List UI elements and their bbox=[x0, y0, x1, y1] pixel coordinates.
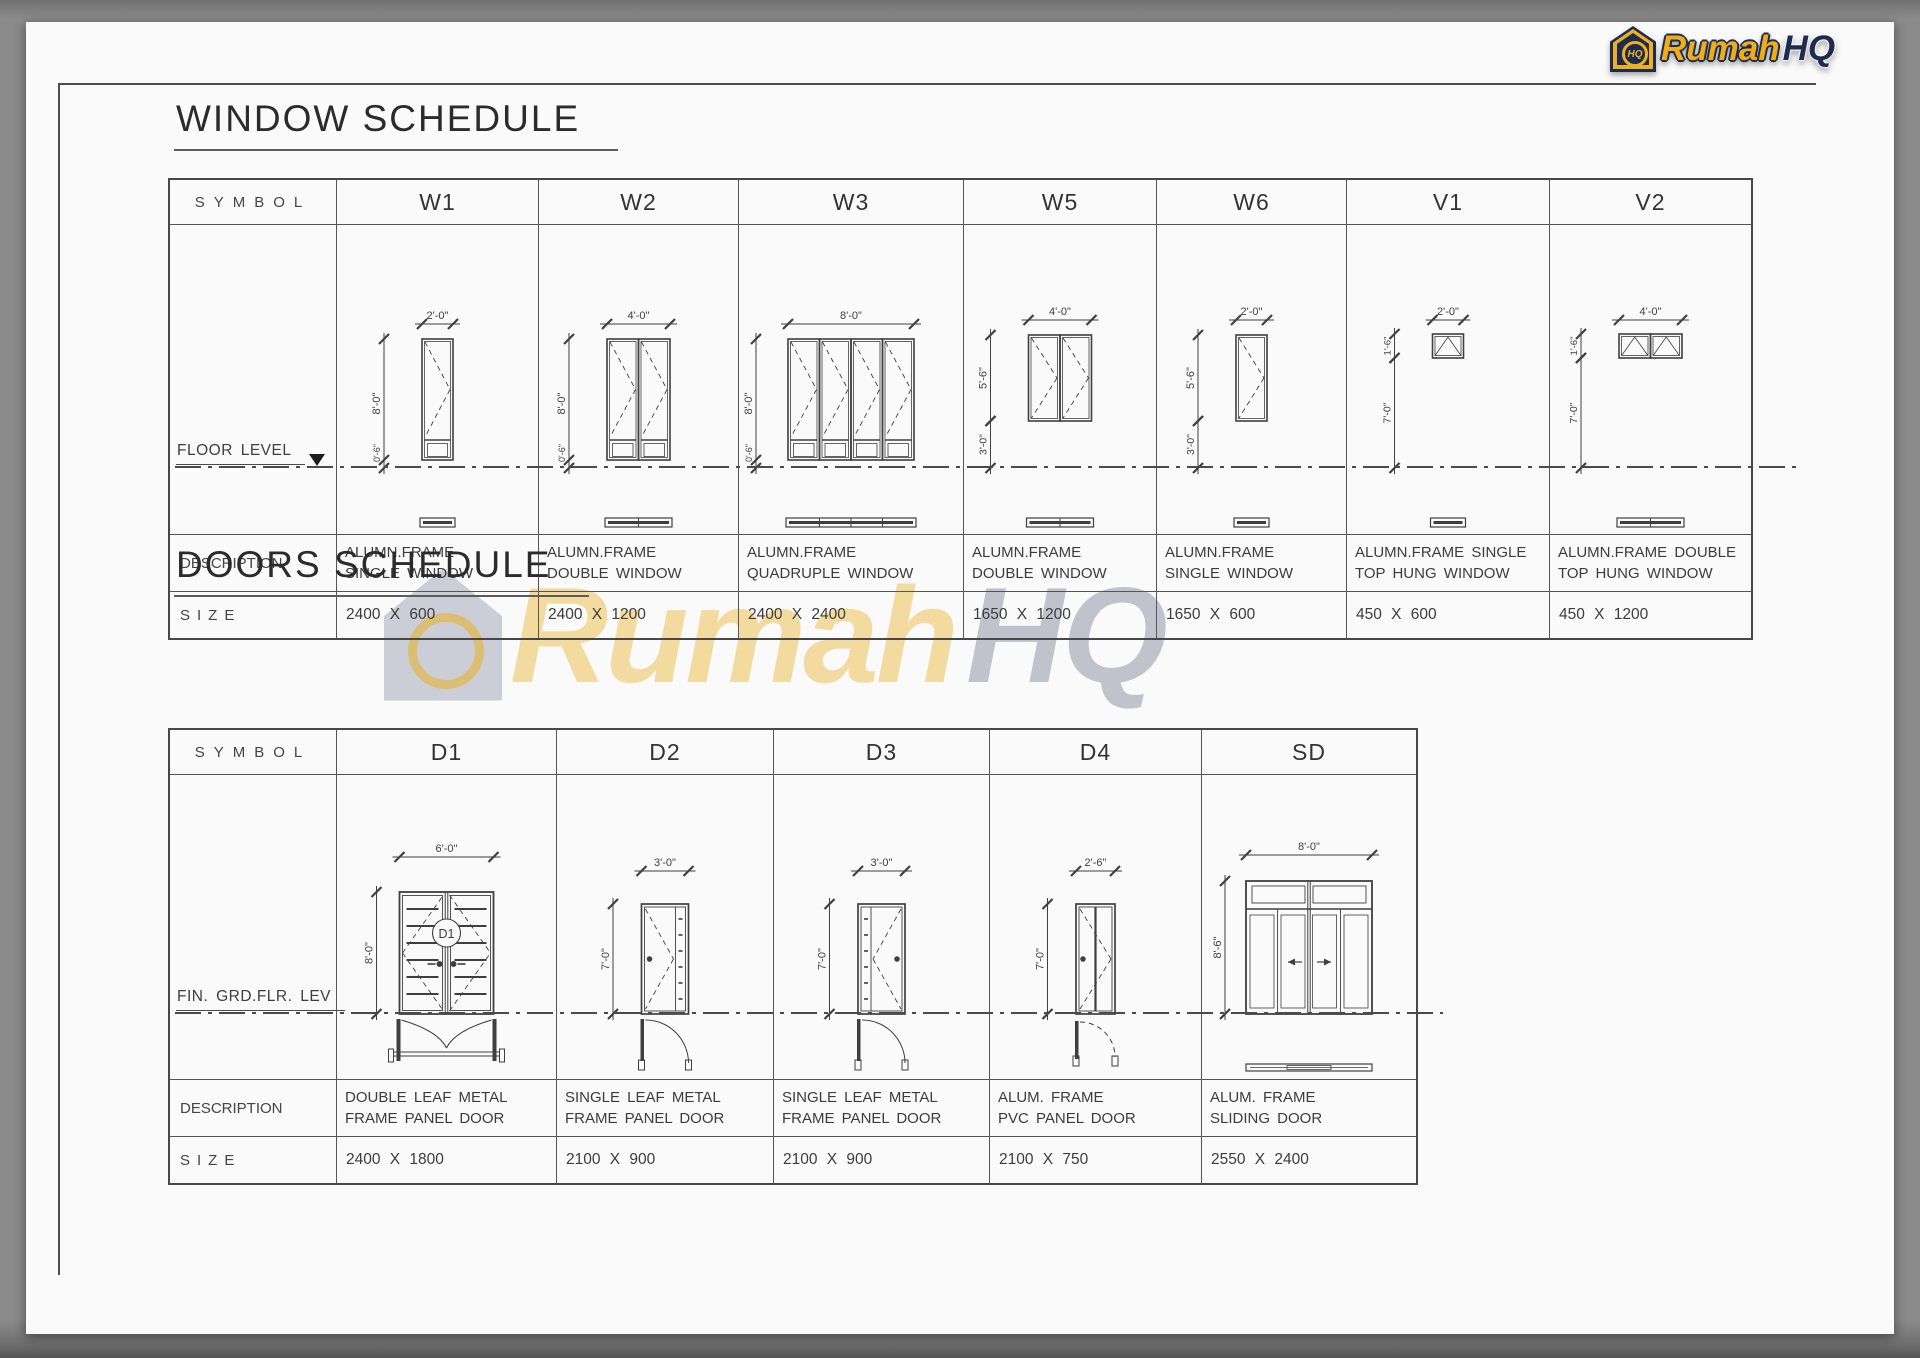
floor-level-marker-icon bbox=[309, 454, 325, 466]
window-elevation-v1: 1'-6"7'-0"2'-0" bbox=[1347, 225, 1550, 535]
svg-text:8'-0": 8'-0" bbox=[371, 392, 383, 414]
window-size-w2: 2400 X 1200 bbox=[539, 592, 739, 638]
door-col-header-d4: D4 bbox=[990, 730, 1202, 775]
door-col-header-d3: D3 bbox=[774, 730, 990, 775]
svg-text:8'-0": 8'-0" bbox=[743, 392, 755, 414]
brand-house-icon: HQ bbox=[1610, 26, 1656, 72]
door-size-d3: 2100 X 900 bbox=[774, 1137, 990, 1183]
svg-text:2'-0": 2'-0" bbox=[427, 310, 449, 322]
window-elevation-w5: 5'-6"3'-0"4'-0" bbox=[964, 225, 1157, 535]
svg-text:7'-0": 7'-0" bbox=[1568, 402, 1580, 423]
window-description-w5: ALUMN.FRAME DOUBLE WINDOW bbox=[964, 535, 1157, 592]
door-description-d4: ALUM. FRAME PVC PANEL DOOR bbox=[990, 1080, 1202, 1137]
svg-text:2'-0": 2'-0" bbox=[1241, 306, 1263, 318]
window-col-header-w5: W5 bbox=[964, 180, 1157, 225]
svg-text:7'-0": 7'-0" bbox=[1382, 402, 1394, 423]
window-symbol-header: SYMBOL bbox=[170, 180, 337, 225]
window-size-w5: 1650 X 1200 bbox=[964, 592, 1157, 638]
window-col-header-w2: W2 bbox=[539, 180, 739, 225]
svg-text:2'-6": 2'-6" bbox=[1085, 857, 1107, 869]
doors-schedule-table: SYMBOL D1 D2 D3 D4 SD D16'-0"8'-0" 3'-0"… bbox=[168, 728, 1418, 1185]
window-schedule-title: WINDOW SCHEDULE bbox=[174, 98, 618, 151]
door-symbol-header: SYMBOL bbox=[170, 730, 337, 775]
window-col-header-w3: W3 bbox=[739, 180, 964, 225]
svg-text:1'-6": 1'-6" bbox=[1383, 337, 1394, 356]
svg-text:3'-0": 3'-0" bbox=[654, 857, 676, 869]
svg-text:D1: D1 bbox=[439, 927, 455, 941]
svg-text:8'-0": 8'-0" bbox=[364, 942, 376, 964]
svg-text:6'-0": 6'-0" bbox=[436, 843, 458, 855]
window-elevation-w1: 8'-0"0'-6"2'-0" bbox=[337, 225, 539, 535]
door-size-d1: 2400 X 1800 bbox=[337, 1137, 557, 1183]
door-elevation-sd: 8'-0"8'-6" bbox=[1202, 775, 1416, 1080]
window-elevation-w2: 8'-0"0'-6"4'-0" bbox=[539, 225, 739, 535]
door-size-d2: 2100 X 900 bbox=[557, 1137, 774, 1183]
door-description-sd: ALUM. FRAME SLIDING DOOR bbox=[1202, 1080, 1416, 1137]
brand-name-hq: HQ bbox=[1783, 29, 1836, 69]
window-elevation-v2: 1'-6"7'-0"4'-0" bbox=[1550, 225, 1751, 535]
door-elevation-d2: 3'-0"7'-0" bbox=[557, 775, 774, 1080]
window-col-header-w6: W6 bbox=[1157, 180, 1347, 225]
door-col-header-d2: D2 bbox=[557, 730, 774, 775]
svg-text:4'-0": 4'-0" bbox=[628, 310, 650, 322]
door-size-sd: 2550 X 2400 bbox=[1202, 1137, 1416, 1183]
window-floor-level-line bbox=[175, 466, 1799, 468]
door-floor-level-label: FIN. GRD.FLR. LEV bbox=[176, 988, 345, 1011]
window-col-header-v1: V1 bbox=[1347, 180, 1550, 225]
svg-text:8'-0": 8'-0" bbox=[840, 310, 862, 322]
window-description-v1: ALUMN.FRAME SINGLE TOP HUNG WINDOW bbox=[1347, 535, 1550, 592]
svg-text:0'-6": 0'-6" bbox=[372, 444, 382, 462]
svg-text:5'-6": 5'-6" bbox=[978, 367, 990, 389]
window-description-v2: ALUMN.FRAME DOUBLE TOP HUNG WINDOW bbox=[1550, 535, 1751, 592]
door-elevation-d3: 3'-0"7'-0" bbox=[774, 775, 990, 1080]
svg-text:8'-6": 8'-6" bbox=[1212, 936, 1224, 958]
sheet-page: Rumah HQ HQ Rumah HQ WINDOW SCHEDULE SYM… bbox=[26, 22, 1894, 1334]
door-col-header-d1: D1 bbox=[337, 730, 557, 775]
svg-text:7'-0": 7'-0" bbox=[817, 948, 829, 970]
svg-text:2'-0": 2'-0" bbox=[1437, 306, 1459, 318]
svg-text:4'-0": 4'-0" bbox=[1049, 306, 1071, 318]
scanned-drawing-sheet: { "logo": { "brand_part1": "Rumah", "bra… bbox=[0, 0, 1920, 1358]
door-elevation-d4: 2'-6"7'-0" bbox=[990, 775, 1202, 1080]
window-size-v1: 450 X 600 bbox=[1347, 592, 1550, 638]
window-elevation-w3: 8'-0"0'-6"8'-0" bbox=[739, 225, 964, 535]
window-size-w3: 2400 X 2400 bbox=[739, 592, 964, 638]
door-description-d1: DOUBLE LEAF METAL FRAME PANEL DOOR bbox=[337, 1080, 557, 1137]
window-description-w6: ALUMN.FRAME SINGLE WINDOW bbox=[1157, 535, 1347, 592]
sheet-border-left bbox=[58, 83, 60, 1275]
door-elevation-d1: D16'-0"8'-0" bbox=[337, 775, 557, 1080]
svg-text:1'-6": 1'-6" bbox=[1569, 337, 1580, 356]
svg-text:5'-6": 5'-6" bbox=[1185, 367, 1197, 389]
window-size-v2: 450 X 1200 bbox=[1550, 592, 1751, 638]
window-floor-label-cell bbox=[170, 225, 337, 535]
door-floor-label-cell bbox=[170, 775, 337, 1080]
svg-text:0'-6": 0'-6" bbox=[557, 444, 567, 462]
svg-text:8'-0": 8'-0" bbox=[1298, 841, 1320, 853]
window-size-label: SIZE bbox=[170, 592, 337, 638]
svg-text:3'-0": 3'-0" bbox=[1185, 434, 1197, 455]
window-size-w6: 1650 X 600 bbox=[1157, 592, 1347, 638]
svg-text:8'-0": 8'-0" bbox=[556, 392, 568, 414]
door-description-d3: SINGLE LEAF METAL FRAME PANEL DOOR bbox=[774, 1080, 990, 1137]
svg-text:0'-6": 0'-6" bbox=[744, 444, 754, 462]
svg-text:3'-0": 3'-0" bbox=[978, 434, 990, 455]
sheet-border-top bbox=[58, 83, 1816, 85]
svg-text:4'-0": 4'-0" bbox=[1640, 306, 1662, 318]
window-col-header-v2: V2 bbox=[1550, 180, 1751, 225]
window-description-w3: ALUMN.FRAME QUADRUPLE WINDOW bbox=[739, 535, 964, 592]
door-size-label: SIZE bbox=[170, 1137, 337, 1183]
brand-logo: HQ Rumah HQ bbox=[1610, 26, 1835, 72]
window-elevation-w6: 5'-6"3'-0"2'-0" bbox=[1157, 225, 1347, 535]
brand-name-rumah: Rumah bbox=[1661, 29, 1780, 69]
door-col-header-sd: SD bbox=[1202, 730, 1416, 775]
window-size-w1: 2400 X 600 bbox=[337, 592, 539, 638]
svg-text:3'-0": 3'-0" bbox=[871, 857, 893, 869]
window-col-header-w1: W1 bbox=[337, 180, 539, 225]
window-floor-level-label: FLOOR LEVEL bbox=[176, 442, 305, 465]
svg-text:7'-0": 7'-0" bbox=[1035, 948, 1047, 970]
door-description-d2: SINGLE LEAF METAL FRAME PANEL DOOR bbox=[557, 1080, 774, 1137]
door-description-label: DESCRIPTION bbox=[170, 1080, 337, 1137]
door-floor-level-line bbox=[175, 1012, 1443, 1014]
door-size-d4: 2100 X 750 bbox=[990, 1137, 1202, 1183]
svg-text:7'-0": 7'-0" bbox=[600, 948, 612, 970]
doors-schedule-title: DOORS SCHEDULE bbox=[174, 544, 589, 597]
